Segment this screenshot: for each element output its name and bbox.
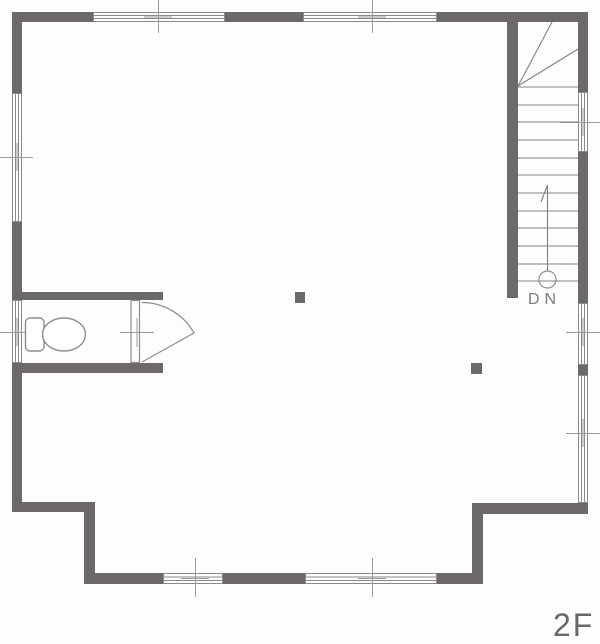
wall-step-right-vertical (472, 503, 483, 584)
staircase (518, 22, 578, 288)
stair-dn-label: DN (528, 291, 561, 309)
door-frame (131, 301, 140, 363)
floor-label: 2F (553, 607, 594, 644)
structural-post (295, 292, 305, 303)
wall-left (12, 12, 22, 512)
centerline-tick (566, 318, 600, 346)
toilet-door (131, 301, 194, 363)
toilet (26, 318, 86, 351)
stair-winder-lines (518, 22, 578, 86)
centerline-tick (0, 143, 33, 171)
wall-step-right-horizontal (472, 503, 588, 514)
wall-stair-partition (507, 22, 518, 298)
wall-toilet-top (22, 292, 163, 300)
wall-toilet-bottom (22, 363, 163, 373)
centerline-tick (358, 0, 386, 33)
centerline-tick (566, 419, 600, 447)
structural-post (471, 363, 482, 374)
toilet-bowl (43, 318, 86, 351)
wall-step-left-horizontal (12, 502, 95, 512)
floor-plan: DN 2F (0, 0, 600, 640)
centerline-tick (144, 0, 172, 33)
toilet-tank (26, 318, 45, 351)
stair-direction-arrow (539, 185, 556, 288)
wall-step-left-vertical (84, 502, 95, 584)
floor-plan-svg (0, 0, 600, 640)
interior-walls (22, 22, 518, 373)
structural-posts (295, 292, 482, 374)
centerline-tick (120, 318, 154, 347)
stair-direction-circle (539, 271, 556, 288)
